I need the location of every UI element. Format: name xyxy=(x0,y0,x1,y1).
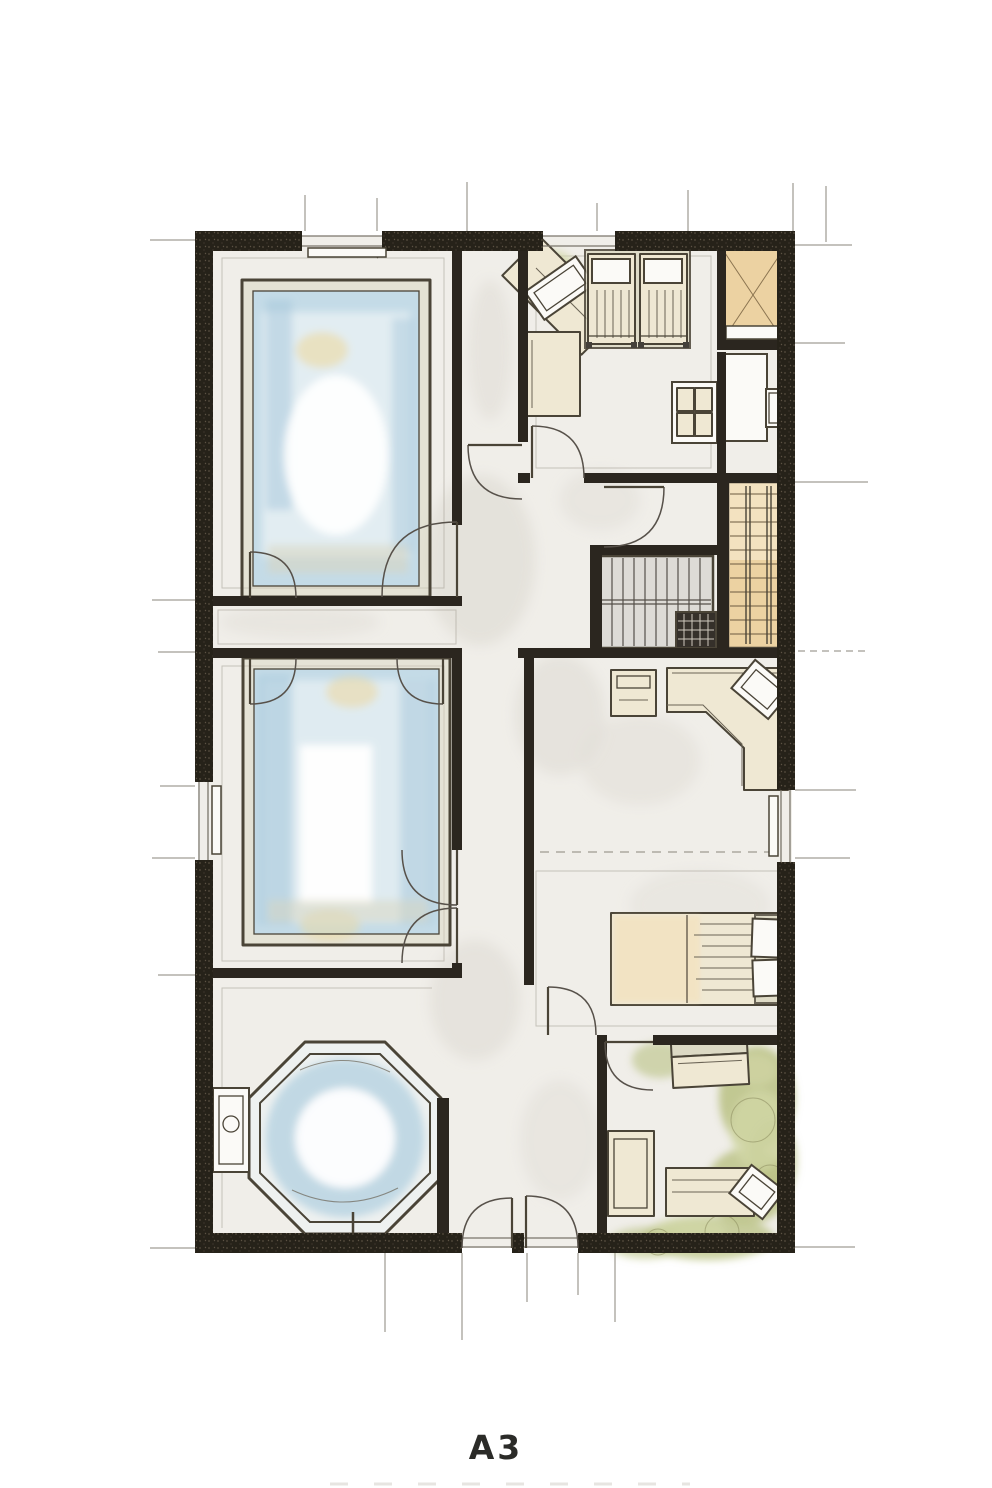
toilet-fixture xyxy=(213,1088,249,1172)
closet-x xyxy=(723,250,783,340)
desk xyxy=(724,354,767,441)
pillow xyxy=(751,919,779,958)
garden-bench xyxy=(671,1038,749,1088)
stairs-grille xyxy=(676,612,716,648)
floor-plan-drawing xyxy=(0,0,992,1488)
pillow xyxy=(752,960,779,997)
closet-shelf xyxy=(726,326,780,339)
garden-sofa xyxy=(608,1131,654,1216)
side-cabinet xyxy=(611,670,656,716)
pillow xyxy=(592,259,630,283)
upper-pool-room xyxy=(222,252,444,597)
sheet-label: A3 xyxy=(0,1428,992,1467)
lower-pool xyxy=(243,658,450,945)
floor-plan-sheet: A3 xyxy=(0,0,992,1488)
twin-bed-2 xyxy=(640,254,687,344)
upper-pool xyxy=(242,280,430,597)
twin-bed-1 xyxy=(588,254,635,344)
dresser xyxy=(672,382,717,443)
double-bed xyxy=(611,911,783,1006)
pillow xyxy=(644,259,682,283)
stairs-main xyxy=(600,556,716,648)
